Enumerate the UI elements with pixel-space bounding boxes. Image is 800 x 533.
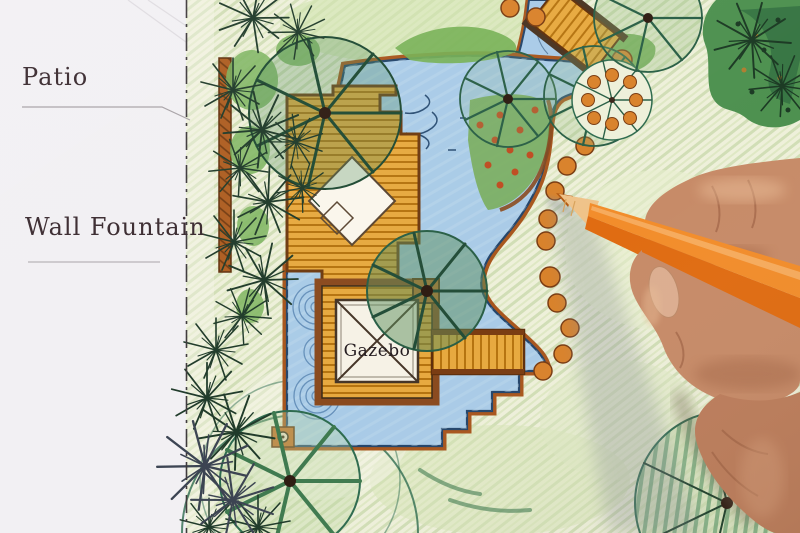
landscape-plan-scene: Gazebo (0, 0, 800, 533)
photo-of-landscape-plan: Gazebo (0, 0, 800, 533)
photo-lighting-overlay (0, 0, 800, 533)
